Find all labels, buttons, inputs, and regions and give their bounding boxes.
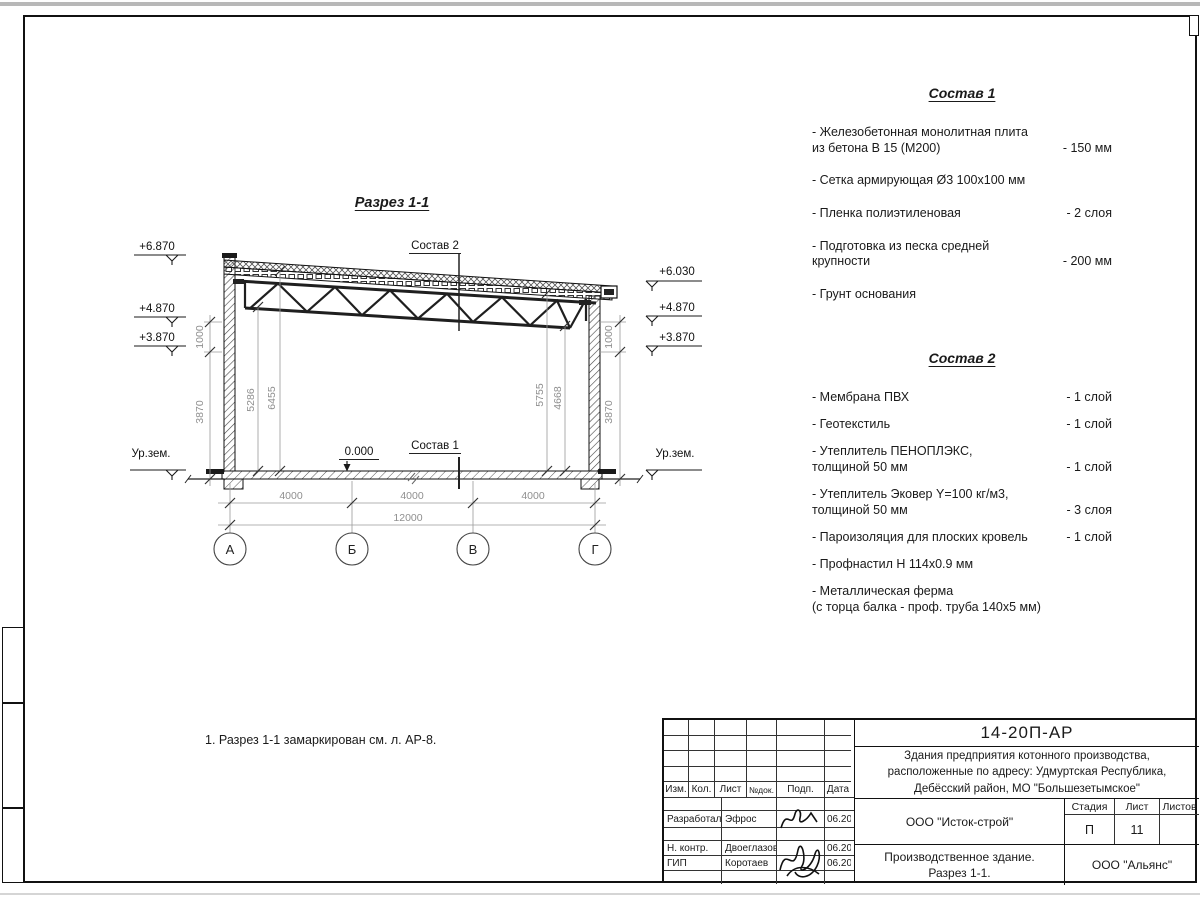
elevation-left-6870: +6.870 — [130, 241, 184, 253]
title-block-main: 14-20П-АР Здания предприятия котонного п… — [855, 720, 1199, 881]
role-label: Н. контр. — [664, 841, 722, 855]
row-norm-control: Н. контр. Двоеглазов 06.20 — [664, 841, 854, 856]
list-item: - Подготовка из песка средней крупности … — [812, 239, 1112, 270]
margin-box — [2, 808, 24, 883]
margin-box — [2, 703, 24, 808]
ground-level-label-right: Ур.зем. — [650, 448, 700, 460]
layer-name: - Железобетонная монолитная плита из бет… — [812, 125, 1063, 156]
project-description: Здания предприятия котонного производств… — [855, 747, 1199, 799]
plinth-left — [206, 469, 224, 474]
dim-total: 12000 — [373, 512, 443, 524]
sostav2-title: Состав 2 — [812, 350, 1112, 366]
elevation-right-6030: +6.030 — [650, 266, 704, 278]
layer-name: - Геотекстиль — [812, 417, 1066, 433]
design-org: ООО "Альянс" — [1065, 845, 1199, 885]
list-item: - Геотекстиль - 1 слой — [812, 417, 1112, 433]
stage-value-row: П 11 — [1065, 815, 1199, 845]
list-item: - Мембрана ПВХ - 1 слой — [812, 390, 1112, 406]
date-value: 06.20 — [825, 841, 851, 855]
elevation-right-4870: +4.870 — [650, 302, 704, 314]
wall-right — [589, 296, 600, 471]
revision-empty-grid — [664, 720, 854, 782]
truss-support-right — [579, 300, 591, 305]
ground-level-label-left: Ур.зем. — [126, 448, 176, 460]
stage-header: Стадия — [1065, 799, 1115, 814]
layer-name: - Профнастил Н 114х0.9 мм — [812, 557, 1112, 573]
elevation-left-4870: +4.870 — [130, 303, 184, 315]
list-item: - Сетка армирующая Ø3 100х100 мм — [812, 173, 1112, 189]
layer-value: - 1 слой — [1066, 417, 1112, 433]
axis-v: В — [461, 542, 485, 558]
sostav1-title: Состав 1 — [812, 85, 1112, 101]
date-value: 06.20 — [825, 856, 851, 870]
dim-3870-right: 3870 — [603, 392, 615, 432]
document-number: 14-20П-АР — [855, 720, 1199, 747]
sostav1-panel: Состав 1 - Железобетонная монолитная пли… — [812, 85, 1112, 319]
layer-name: - Утеплитель Эковер Y=100 кг/м3, толщино… — [812, 487, 1067, 518]
elevation-left-3870: +3.870 — [130, 332, 184, 344]
sheets-header: Листов — [1160, 799, 1199, 814]
layer-value: - 1 слой — [1066, 390, 1112, 406]
truss-support-left — [233, 279, 244, 284]
list-item: - Утеплитель Эковер Y=100 кг/м3, толщино… — [812, 487, 1112, 518]
axis-bubbles — [214, 533, 611, 565]
elevation-right-3870: +3.870 — [650, 332, 704, 344]
row-gip: ГИП Коротаев 06.20 — [664, 856, 854, 871]
title-block-revision-table: Изм. Кол. Лист №док. Подп. Дата Разработ… — [664, 720, 855, 881]
paper-edge-bottom — [0, 893, 1200, 895]
sheet-title: Производственное здание. Разрез 1-1. — [855, 845, 1064, 885]
layer-name: - Сетка армирующая Ø3 100х100 мм — [812, 173, 1112, 189]
layer-value: - 1 слой — [1066, 460, 1112, 476]
dim-span-1: 4000 — [261, 490, 321, 502]
dim-5286: 5286 — [245, 380, 257, 420]
list-item: - Пароизоляция для плоских кровель - 1 с… — [812, 530, 1112, 546]
dim-5755: 5755 — [534, 375, 546, 415]
revision-header-row: Изм. Кол. Лист №док. Подп. Дата — [664, 782, 854, 798]
row-developer: Разработал Эфрос 06.20 — [664, 811, 854, 828]
layer-name: - Металлическая ферма (с торца балка - п… — [812, 584, 1112, 615]
sheet-number: 11 — [1115, 815, 1160, 844]
header-data: Дата — [825, 782, 851, 797]
layer-value: - 150 мм — [1063, 141, 1112, 157]
sostav2-panel: Состав 2 - Мембрана ПВХ - 1 слой - Геоте… — [812, 350, 1112, 627]
person-name: Эфрос — [722, 811, 777, 827]
wall-left — [224, 257, 235, 471]
list-item: - Профнастил Н 114х0.9 мм — [812, 557, 1112, 573]
header-list: Лист — [715, 782, 747, 797]
margin-box — [2, 627, 24, 703]
paper-edge-top — [0, 2, 1200, 6]
axis-a: А — [218, 542, 242, 558]
dim-4668: 4668 — [552, 378, 564, 418]
plinth-right — [598, 469, 616, 474]
sheet-header: Лист — [1115, 799, 1160, 814]
person-name: Двоеглазов — [722, 841, 777, 855]
sostav2-callout: Состав 2 — [409, 240, 461, 254]
section-title: Разрез 1-1 — [322, 195, 462, 211]
dim-3870-left: 3870 — [194, 392, 206, 432]
list-item: - Пленка полиэтиленовая - 2 слоя — [812, 206, 1112, 222]
list-item: - Металлическая ферма (с торца балка - п… — [812, 584, 1112, 615]
sostav1-callout: Состав 1 — [409, 440, 461, 454]
layer-name: - Грунт основания — [812, 287, 1112, 303]
layer-name: - Мембрана ПВХ — [812, 390, 1066, 406]
dim-1000-left: 1000 — [194, 317, 206, 357]
roof-end-beam-core — [604, 289, 614, 295]
sheets-total — [1160, 815, 1199, 844]
layer-name: - Пароизоляция для плоских кровель — [812, 530, 1066, 546]
drawing-sheet: Разрез 1-1 — [0, 0, 1200, 900]
foundation-pad-left — [224, 479, 243, 489]
header-ndok: №док. — [747, 782, 777, 797]
header-podp: Подп. — [777, 782, 825, 797]
dim-span-3: 4000 — [503, 490, 563, 502]
person-name: Коротаев — [722, 856, 777, 870]
layer-name: - Пленка полиэтиленовая — [812, 206, 1067, 222]
layer-value: - 200 мм — [1063, 254, 1112, 270]
zero-level-arrow — [344, 461, 351, 472]
dim-span-2: 4000 — [382, 490, 442, 502]
wall-left-cap — [222, 253, 237, 258]
layer-name: - Утеплитель ПЕНОПЛЭКС, толщиной 50 мм — [812, 444, 1066, 475]
role-label: Разработал — [664, 811, 722, 827]
axis-g: Г — [583, 542, 607, 558]
role-label: ГИП — [664, 856, 722, 870]
contractor-org: ООО "Исток-строй" — [855, 799, 1064, 845]
zero-level-label: 0.000 — [339, 446, 379, 460]
stage-header-row: Стадия Лист Листов — [1065, 799, 1199, 815]
stage-value: П — [1065, 815, 1115, 844]
date-value: 06.20 — [825, 811, 851, 827]
layer-value: - 1 слой — [1066, 530, 1112, 546]
list-item: - Грунт основания — [812, 287, 1112, 303]
title-block: Изм. Кол. Лист №док. Подп. Дата Разработ… — [662, 718, 1197, 883]
dim-1000-right: 1000 — [603, 317, 615, 357]
axis-b: Б — [340, 542, 364, 558]
foundation-pad-right — [581, 479, 599, 489]
layer-value: - 2 слоя — [1067, 206, 1112, 222]
top-right-doc-box — [1189, 15, 1199, 36]
layer-name: - Подготовка из песка средней крупности — [812, 239, 1063, 270]
dim-6455: 6455 — [266, 378, 278, 418]
sheet-note: 1. Разрез 1-1 замаркирован см. л. АР-8. — [205, 733, 436, 747]
list-item: - Железобетонная монолитная плита из бет… — [812, 125, 1112, 156]
list-item: - Утеплитель ПЕНОПЛЭКС, толщиной 50 мм -… — [812, 444, 1112, 475]
layer-value: - 3 слоя — [1067, 503, 1112, 519]
roles-rows: Разработал Эфрос 06.20 Н. контр. Двоегла… — [664, 798, 854, 884]
header-kol: Кол. — [689, 782, 715, 797]
header-izm: Изм. — [664, 782, 689, 797]
